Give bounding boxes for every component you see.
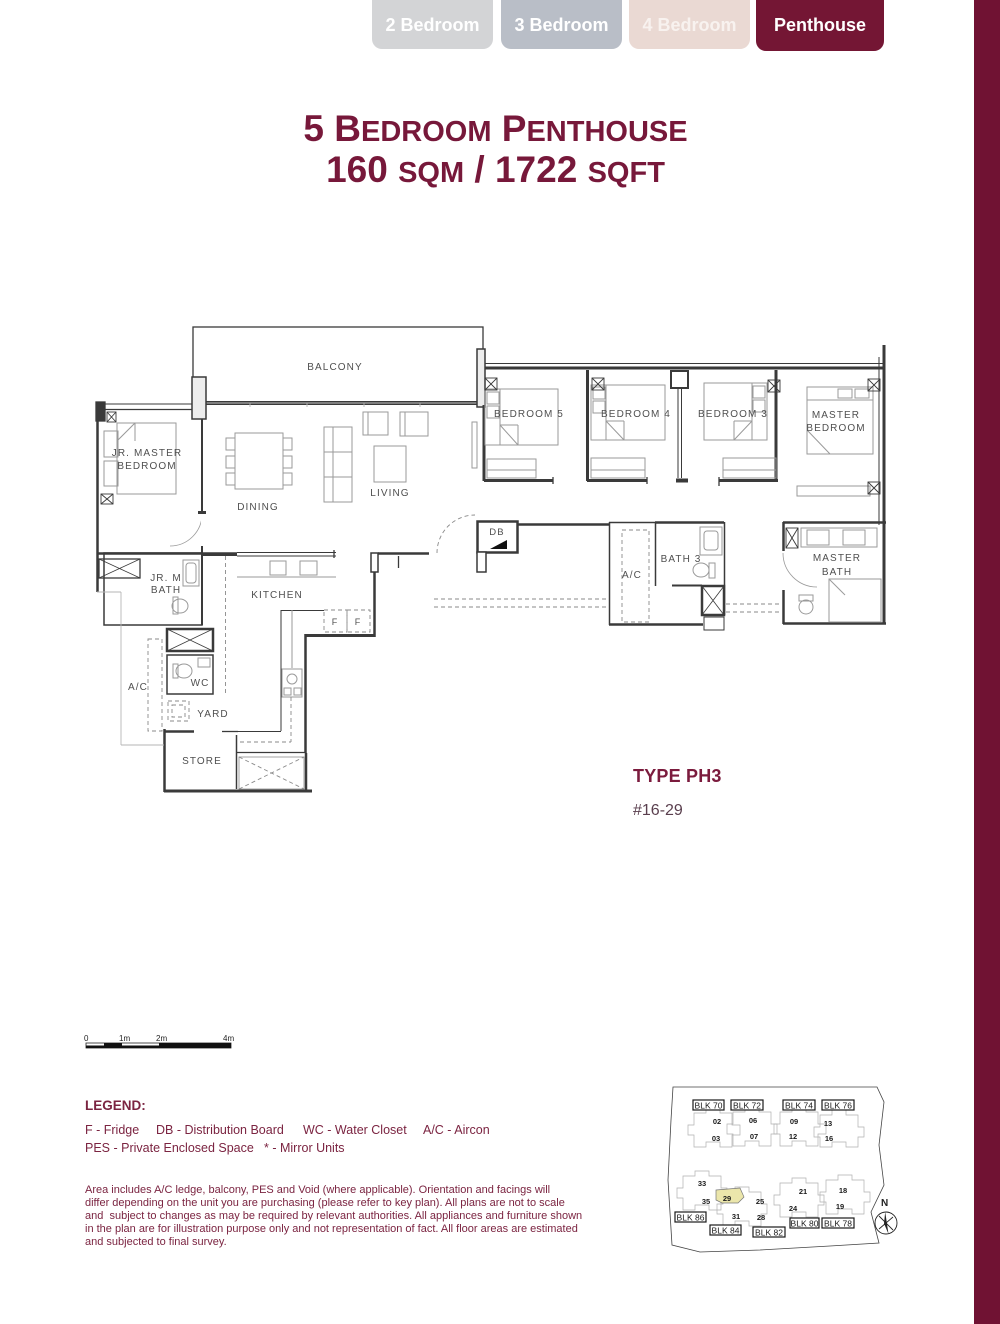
svg-text:BATH: BATH <box>151 585 181 596</box>
svg-text:BLK 74: BLK 74 <box>785 1101 813 1111</box>
svg-text:BATH: BATH <box>822 567 852 578</box>
svg-text:BLK 80: BLK 80 <box>791 1219 819 1229</box>
svg-text:BLK 72: BLK 72 <box>733 1101 761 1111</box>
svg-text:0: 0 <box>84 1034 89 1043</box>
svg-text:18: 18 <box>839 1186 847 1195</box>
svg-text:06: 06 <box>749 1116 757 1125</box>
svg-text:25: 25 <box>756 1197 764 1206</box>
svg-text:N: N <box>881 1198 888 1209</box>
svg-text:19: 19 <box>836 1202 844 1211</box>
svg-text:07: 07 <box>750 1132 758 1141</box>
svg-text:35: 35 <box>702 1197 710 1206</box>
svg-text:02: 02 <box>713 1117 721 1126</box>
svg-text:YARD: YARD <box>197 709 228 720</box>
svg-text:4m: 4m <box>223 1034 234 1043</box>
svg-text:WC: WC <box>191 678 210 689</box>
svg-text:BLK 82: BLK 82 <box>755 1228 783 1238</box>
svg-text:12: 12 <box>789 1132 797 1141</box>
svg-text:MASTER: MASTER <box>812 410 860 421</box>
svg-text:BLK 76: BLK 76 <box>824 1101 852 1111</box>
svg-text:2m: 2m <box>156 1034 167 1043</box>
svg-text:03: 03 <box>712 1134 720 1143</box>
svg-text:F: F <box>355 617 362 627</box>
svg-text:DINING: DINING <box>237 502 279 513</box>
svg-text:28: 28 <box>757 1213 765 1222</box>
svg-text:1m: 1m <box>119 1034 130 1043</box>
svg-text:A/C: A/C <box>128 682 148 693</box>
svg-text:31: 31 <box>732 1212 740 1221</box>
svg-text:16: 16 <box>825 1134 833 1143</box>
svg-text:33: 33 <box>698 1179 706 1188</box>
svg-text:29: 29 <box>723 1194 731 1203</box>
svg-text:24: 24 <box>789 1204 798 1213</box>
svg-text:DB: DB <box>489 527 504 538</box>
svg-text:BEDROOM: BEDROOM <box>806 423 865 434</box>
svg-text:09: 09 <box>790 1117 798 1126</box>
svg-text:JR. MASTER: JR. MASTER <box>112 448 182 459</box>
svg-text:A/C: A/C <box>622 570 642 581</box>
svg-text:LIVING: LIVING <box>370 488 409 499</box>
svg-text:21: 21 <box>799 1187 807 1196</box>
svg-text:BATH 3: BATH 3 <box>661 554 702 565</box>
svg-text:BEDROOM 3: BEDROOM 3 <box>698 409 768 420</box>
svg-text:JR. M: JR. M <box>150 573 182 584</box>
svg-text:BEDROOM: BEDROOM <box>117 461 176 472</box>
svg-text:BALCONY: BALCONY <box>307 362 363 373</box>
svg-text:BLK 70: BLK 70 <box>695 1101 723 1111</box>
svg-text:BEDROOM 5: BEDROOM 5 <box>494 409 564 420</box>
svg-text:STORE: STORE <box>182 756 222 767</box>
svg-text:BLK 78: BLK 78 <box>824 1219 852 1229</box>
svg-text:MASTER: MASTER <box>813 553 861 564</box>
svg-text:13: 13 <box>824 1119 832 1128</box>
svg-text:KITCHEN: KITCHEN <box>251 590 303 601</box>
svg-text:BLK 84: BLK 84 <box>712 1226 740 1236</box>
svg-text:BLK 86: BLK 86 <box>677 1213 705 1223</box>
svg-text:BEDROOM 4: BEDROOM 4 <box>601 409 671 420</box>
svg-text:F: F <box>332 617 339 627</box>
